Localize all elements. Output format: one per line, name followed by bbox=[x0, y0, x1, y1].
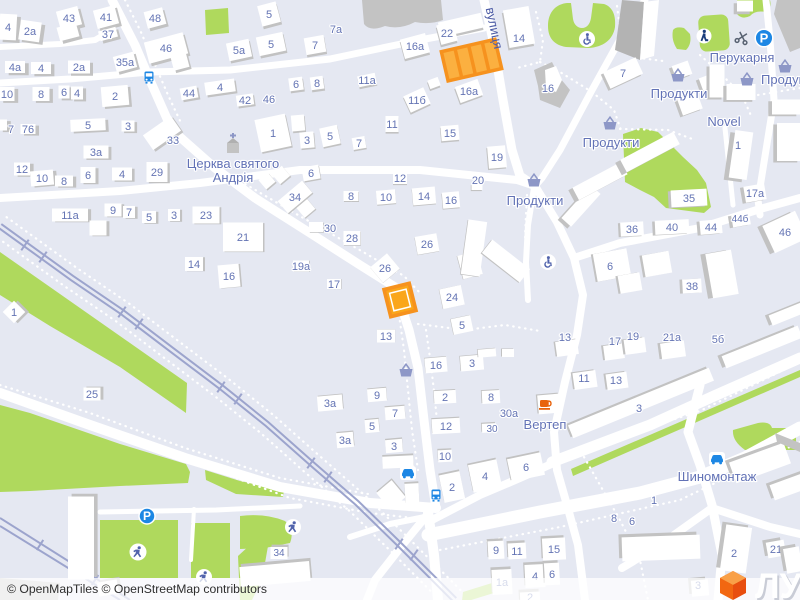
svg-text:3: 3 bbox=[125, 121, 131, 133]
svg-text:6: 6 bbox=[629, 516, 635, 528]
svg-text:3: 3 bbox=[636, 403, 642, 415]
svg-text:16: 16 bbox=[223, 271, 235, 283]
svg-text:3: 3 bbox=[171, 210, 177, 222]
svg-text:P: P bbox=[143, 509, 151, 523]
svg-text:11: 11 bbox=[511, 546, 522, 558]
svg-text:5: 5 bbox=[266, 9, 272, 21]
svg-text:Вертеп: Вертеп bbox=[524, 417, 567, 432]
svg-text:4: 4 bbox=[5, 22, 11, 34]
svg-text:Продукти: Продукти bbox=[651, 86, 708, 101]
svg-text:1: 1 bbox=[270, 128, 276, 140]
svg-text:21а: 21а bbox=[663, 332, 682, 344]
svg-text:10: 10 bbox=[380, 192, 392, 204]
svg-text:8: 8 bbox=[61, 176, 67, 188]
svg-text:13: 13 bbox=[610, 375, 622, 387]
svg-text:2: 2 bbox=[112, 91, 118, 103]
svg-text:3а: 3а bbox=[90, 147, 103, 159]
svg-text:Продукти: Продукти bbox=[761, 72, 800, 87]
svg-text:6: 6 bbox=[607, 261, 613, 273]
svg-text:7: 7 bbox=[312, 40, 318, 52]
svg-text:2а: 2а bbox=[24, 26, 37, 38]
svg-text:34: 34 bbox=[273, 548, 285, 559]
svg-text:16а: 16а bbox=[460, 86, 479, 98]
svg-text:13: 13 bbox=[559, 332, 571, 344]
svg-text:11а: 11а bbox=[61, 210, 79, 222]
svg-text:16: 16 bbox=[445, 195, 457, 207]
svg-text:6: 6 bbox=[61, 87, 67, 99]
svg-text:35: 35 bbox=[683, 193, 695, 205]
svg-text:10: 10 bbox=[1, 89, 13, 101]
svg-text:28: 28 bbox=[346, 233, 358, 245]
svg-text:2: 2 bbox=[449, 482, 455, 494]
svg-text:6: 6 bbox=[308, 168, 314, 180]
svg-text:19а: 19а bbox=[292, 261, 311, 273]
svg-text:20: 20 bbox=[472, 175, 484, 187]
svg-text:10: 10 bbox=[36, 173, 48, 185]
svg-text:34: 34 bbox=[289, 192, 301, 204]
svg-text:42: 42 bbox=[239, 95, 251, 107]
svg-text:2: 2 bbox=[731, 548, 737, 560]
svg-text:2а: 2а bbox=[73, 62, 86, 74]
svg-text:4а: 4а bbox=[9, 62, 22, 74]
svg-text:19: 19 bbox=[491, 152, 503, 164]
svg-text:P: P bbox=[760, 31, 769, 46]
svg-text:5: 5 bbox=[327, 131, 333, 143]
svg-text:3а: 3а bbox=[324, 398, 337, 410]
svg-text:1: 1 bbox=[651, 495, 657, 507]
svg-text:Шиномонтаж: Шиномонтаж bbox=[678, 469, 757, 484]
svg-text:23: 23 bbox=[200, 210, 212, 222]
svg-text:44: 44 bbox=[705, 222, 717, 234]
svg-text:36: 36 bbox=[626, 224, 638, 236]
svg-text:6: 6 bbox=[85, 170, 91, 182]
svg-text:Novel: Novel bbox=[707, 114, 740, 129]
svg-text:15: 15 bbox=[548, 544, 560, 556]
svg-text:16: 16 bbox=[542, 83, 554, 95]
svg-text:24: 24 bbox=[446, 292, 458, 304]
svg-text:11: 11 bbox=[578, 373, 589, 385]
svg-text:14: 14 bbox=[418, 191, 430, 203]
svg-text:5: 5 bbox=[85, 120, 91, 132]
svg-text:1: 1 bbox=[11, 307, 17, 319]
svg-text:21: 21 bbox=[237, 232, 249, 244]
svg-text:9: 9 bbox=[374, 390, 380, 402]
svg-text:9: 9 bbox=[493, 545, 499, 557]
svg-text:16а: 16а bbox=[406, 41, 425, 53]
svg-text:5б: 5б bbox=[712, 334, 724, 346]
svg-text:76: 76 bbox=[22, 124, 34, 136]
svg-text:Продукти: Продукти bbox=[507, 193, 564, 208]
svg-text:7: 7 bbox=[392, 408, 398, 420]
svg-text:8: 8 bbox=[348, 191, 354, 203]
svg-text:44: 44 bbox=[183, 88, 195, 100]
svg-text:12: 12 bbox=[440, 421, 452, 433]
svg-text:25: 25 bbox=[86, 389, 98, 401]
svg-text:Андрія: Андрія bbox=[213, 170, 254, 185]
svg-text:26: 26 bbox=[379, 263, 391, 275]
svg-text:16: 16 bbox=[430, 360, 442, 372]
svg-text:46: 46 bbox=[779, 227, 791, 239]
svg-text:37: 37 bbox=[102, 29, 114, 41]
svg-text:22: 22 bbox=[441, 28, 453, 40]
svg-text:12: 12 bbox=[16, 164, 28, 176]
svg-text:6: 6 bbox=[293, 79, 299, 91]
svg-text:Перукарня: Перукарня bbox=[710, 50, 775, 65]
svg-text:46: 46 bbox=[263, 94, 275, 106]
svg-text:5: 5 bbox=[459, 320, 465, 332]
svg-text:48: 48 bbox=[149, 13, 161, 25]
svg-text:46: 46 bbox=[160, 43, 172, 55]
svg-text:7: 7 bbox=[8, 124, 14, 136]
svg-text:5: 5 bbox=[146, 212, 152, 224]
svg-text:3: 3 bbox=[469, 358, 475, 370]
svg-text:35а: 35а bbox=[116, 57, 135, 69]
svg-text:8: 8 bbox=[611, 513, 617, 525]
svg-text:30: 30 bbox=[324, 223, 336, 235]
svg-text:17: 17 bbox=[609, 336, 621, 348]
svg-text:14: 14 bbox=[188, 259, 200, 271]
svg-text:4: 4 bbox=[119, 169, 125, 181]
svg-text:Продукти: Продукти bbox=[583, 135, 640, 150]
svg-text:33: 33 bbox=[167, 135, 179, 147]
svg-text:17: 17 bbox=[328, 279, 340, 291]
svg-text:3: 3 bbox=[391, 441, 397, 453]
svg-text:41: 41 bbox=[100, 12, 112, 24]
svg-text:7: 7 bbox=[620, 68, 626, 80]
svg-text:11б: 11б bbox=[408, 95, 426, 107]
svg-text:12: 12 bbox=[394, 173, 406, 185]
svg-text:5: 5 bbox=[268, 39, 274, 51]
svg-text:7: 7 bbox=[356, 138, 362, 150]
svg-text:8: 8 bbox=[38, 89, 44, 101]
svg-text:10: 10 bbox=[439, 451, 451, 463]
svg-text:Церква святого: Церква святого bbox=[187, 156, 279, 171]
svg-text:© OpenMapTiles © OpenStreetMap: © OpenMapTiles © OpenStreetMap contribut… bbox=[7, 582, 267, 596]
svg-text:30: 30 bbox=[486, 424, 498, 435]
svg-text:15: 15 bbox=[444, 128, 456, 140]
svg-text:44б: 44б bbox=[732, 213, 749, 225]
svg-text:40: 40 bbox=[666, 222, 678, 234]
svg-text:29: 29 bbox=[151, 167, 163, 179]
svg-text:3: 3 bbox=[304, 135, 310, 147]
svg-text:17а: 17а bbox=[746, 188, 765, 200]
svg-text:30а: 30а bbox=[500, 408, 519, 420]
svg-text:26: 26 bbox=[421, 239, 433, 251]
svg-text:8: 8 bbox=[314, 78, 320, 90]
svg-text:5а: 5а bbox=[233, 45, 246, 57]
svg-text:4: 4 bbox=[74, 88, 80, 100]
svg-text:11: 11 bbox=[386, 119, 397, 131]
svg-text:7: 7 bbox=[126, 207, 132, 219]
svg-text:11а: 11а bbox=[358, 75, 376, 87]
svg-text:7а: 7а bbox=[330, 24, 343, 36]
svg-text:2: 2 bbox=[442, 392, 448, 404]
svg-text:ЛУН: ЛУН bbox=[755, 567, 800, 600]
svg-text:4: 4 bbox=[482, 471, 488, 483]
svg-text:14: 14 bbox=[513, 33, 525, 45]
svg-text:6: 6 bbox=[523, 462, 529, 474]
svg-text:5: 5 bbox=[369, 421, 375, 433]
svg-text:38: 38 bbox=[686, 281, 698, 293]
svg-text:13: 13 bbox=[380, 331, 392, 343]
svg-text:8: 8 bbox=[488, 392, 494, 404]
svg-text:9: 9 bbox=[110, 205, 116, 217]
svg-text:4: 4 bbox=[38, 63, 44, 75]
svg-text:1: 1 bbox=[735, 140, 741, 152]
svg-text:3а: 3а bbox=[339, 435, 352, 447]
svg-text:4: 4 bbox=[217, 82, 223, 94]
svg-text:19: 19 bbox=[627, 331, 639, 343]
svg-text:43: 43 bbox=[63, 13, 75, 25]
